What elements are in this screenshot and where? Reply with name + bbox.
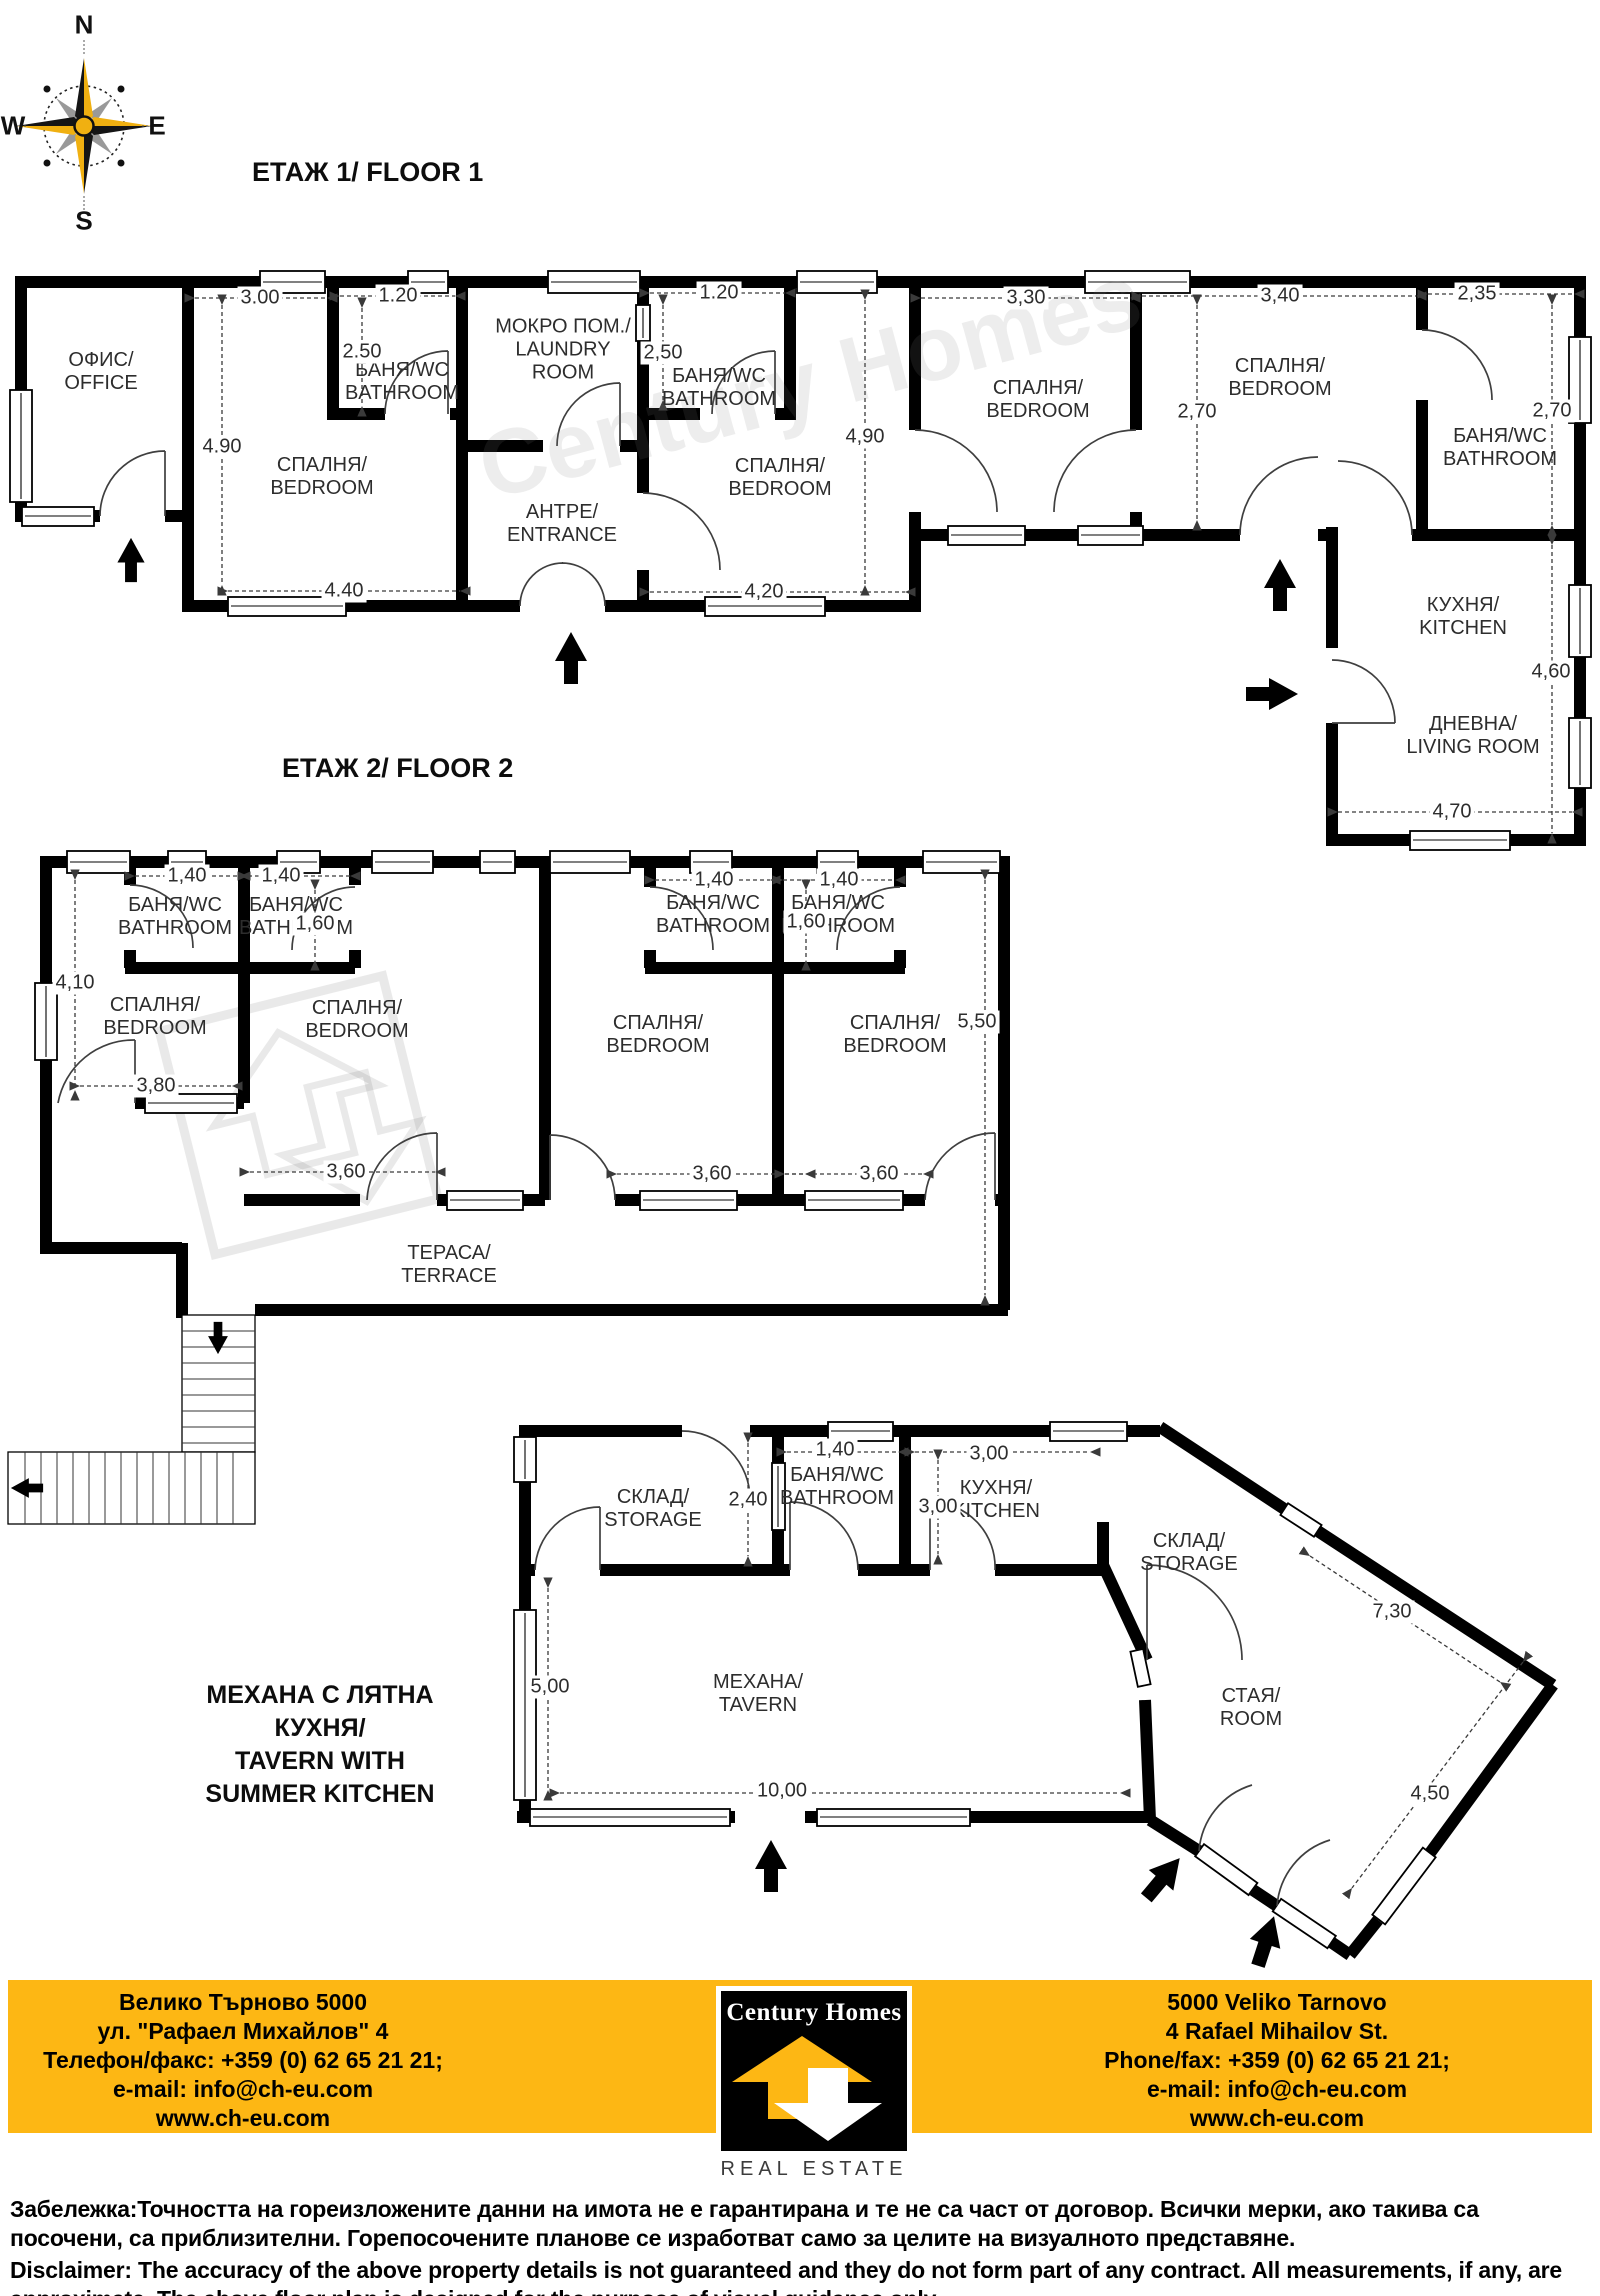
dim-f1-bedroom1-h: 4.90	[200, 436, 245, 459]
dim-f1-bedroom1-w: 3.00	[238, 287, 283, 310]
entrance-arrow-icon	[117, 538, 144, 582]
dim-f1-bath2-w: 1.20	[697, 282, 742, 305]
entrance-arrow-icon	[755, 1840, 787, 1892]
entrance-arrow-icon	[1243, 1911, 1290, 1970]
dim-f1-bath2-h: 2,50	[641, 342, 686, 365]
dim-f1-bedroom3-w: 3,30	[1004, 287, 1049, 310]
logo-arrows-icon	[721, 2027, 907, 2145]
room-label-bath3-f1: БАНЯ/WCBATHROOM	[1443, 425, 1557, 471]
dim-f2-bedroom1-h: 4,10	[53, 972, 98, 995]
room-label-kitchen-f1: КУХНЯ/KITCHEN	[1419, 594, 1507, 640]
disclaimer-en: Disclaimer: The accuracy of the above pr…	[10, 2256, 1592, 2296]
dim-tv-kitchen-h: 3,00	[916, 1496, 961, 1519]
dim-tv-storage1-h: 2,40	[726, 1489, 771, 1512]
room-label-kitchen-tavern: КУХНЯ/KITCHEN	[952, 1477, 1040, 1523]
room-label-bedroom4-f1: СПАЛНЯ/BEDROOM	[1228, 355, 1331, 401]
dim-f2-bath4-w: 1,40	[817, 869, 862, 892]
dim-f1-bedroom2-w: 4,20	[742, 581, 787, 604]
dim-f1-bedroom1-b: 4.40	[322, 580, 367, 603]
footer-email-en: e-mail: info@ch-eu.com	[1046, 2075, 1508, 2104]
dim-f1-bath1-w: 1.20	[376, 285, 421, 308]
room-label-bedroom1-f2: СПАЛНЯ/BEDROOM	[103, 994, 206, 1040]
floor2-title: ЕТАЖ 2/ FLOOR 2	[282, 753, 513, 784]
dim-f1-bath1-h: 2.50	[340, 341, 385, 364]
room-label-bath-tavern: БАНЯ/WCBATHROOM	[780, 1464, 894, 1510]
room-label-storage2: СКЛАД/STORAGE	[1140, 1530, 1237, 1576]
compass-icon	[14, 40, 152, 210]
room-label-bath1-f2: БАНЯ/WCBATHROOM	[118, 894, 232, 940]
room-label-terrace: ТЕРАСА/TERRACE	[401, 1242, 497, 1288]
dim-f1-kitchen-h: 4,60	[1529, 661, 1574, 684]
logo-tagline: REAL ESTATE	[700, 2158, 928, 2181]
room-label-bedroom3-f2: СПАЛНЯ/BEDROOM	[606, 1012, 709, 1058]
footer-website-en: www.ch-eu.com	[1046, 2104, 1508, 2133]
dim-tv-room-l: 7,30	[1370, 1601, 1415, 1624]
dim-tv-tavern-w: 10,00	[754, 1780, 810, 1803]
compass-south-label: S	[75, 206, 92, 237]
compass-north-label: N	[75, 10, 94, 41]
room-label-bedroom2-f1: СПАЛНЯ/BEDROOM	[728, 455, 831, 501]
footer-website-bg: www.ch-eu.com	[10, 2104, 476, 2133]
dim-f2-bath3-w: 1,40	[692, 869, 737, 892]
room-label-storage1: СКЛАД/STORAGE	[604, 1486, 701, 1532]
dim-f2-bedroom2-w: 3,60	[324, 1161, 369, 1184]
footer-email-bg: e-mail: info@ch-eu.com	[10, 2075, 476, 2104]
entrance-arrow-icon	[1264, 559, 1296, 611]
dim-f2-bedroom4-h: 5,50	[955, 1011, 1000, 1034]
room-label-office: ОФИС/OFFICE	[64, 349, 137, 395]
entrance-arrow-icon	[555, 632, 587, 684]
dim-f2-bedroom1-w: 3,80	[134, 1075, 179, 1098]
dim-tv-room-w: 4,50	[1408, 1783, 1453, 1806]
dim-f1-bedroom4-w: 3,40	[1258, 285, 1303, 308]
dim-f1-bath3-h: 2,70	[1530, 400, 1575, 423]
dim-f2-bedroom3-w: 3,60	[690, 1163, 735, 1186]
floorplan-document: Century Homes	[0, 0, 1600, 2296]
dim-f2-bedroom4-w: 3,60	[857, 1163, 902, 1186]
dim-tv-bath-w: 1,40	[813, 1439, 858, 1462]
room-label-bedroom4-f2: СПАЛНЯ/BEDROOM	[843, 1012, 946, 1058]
logo-brand-text: Century Homes	[721, 1991, 907, 2027]
disclaimer-bg: Забележка:Точността на гореизложените да…	[10, 2195, 1592, 2253]
room-label-laundry: МОКРО ПОМ./LAUNDRYROOM	[495, 316, 631, 385]
dim-tv-kitchen-w: 3,00	[967, 1443, 1012, 1466]
compass-west-label: W	[1, 111, 26, 142]
tavern-title: МЕХАНА С ЛЯТНАКУХНЯ/ TAVERN WITHSUMMER K…	[152, 1679, 488, 1811]
footer-address-bg: Велико Търново 5000 ул. "Рафаел Михайлов…	[10, 1988, 476, 2133]
stairs	[8, 1315, 255, 1524]
dim-f1-bedroom4-h: 2,70	[1175, 401, 1220, 424]
dim-f2-bath4-h: 1,60	[784, 911, 829, 934]
room-label-bath1-f1: БАНЯ/WCBATHROOM	[345, 359, 459, 405]
room-label-living: ДНЕВНА/LIVING ROOM	[1406, 713, 1539, 759]
entrance-arrow-icon	[1246, 678, 1298, 710]
room-label-bath2-f1: БАНЯ/WCBATHROOM	[662, 365, 776, 411]
dim-tv-tavern-h: 5,00	[528, 1676, 573, 1699]
room-label-tavern: МЕХАНА/TAVERN	[713, 1671, 803, 1717]
dim-f1-bath3-w: 2,35	[1455, 283, 1500, 306]
compass-east-label: E	[148, 111, 165, 142]
footer-address-en: 5000 Veliko Tarnovo 4 Rafael Mihailov St…	[1046, 1988, 1508, 2133]
dim-f2-bath1-w: 1,40	[165, 865, 210, 888]
room-label-entrance: АНТРЕ/ENTRANCE	[507, 501, 617, 547]
room-label-bedroom2-f2: СПАЛНЯ/BEDROOM	[305, 997, 408, 1043]
room-label-room: СТАЯ/ROOM	[1220, 1685, 1282, 1731]
dim-f2-bath2-w: 1,40	[259, 865, 304, 888]
dim-f1-kitchen-w: 4,70	[1430, 801, 1475, 824]
floor1-title: ЕТАЖ 1/ FLOOR 1	[252, 157, 483, 188]
room-label-bath3-f2: БАНЯ/WCBATHROOM	[656, 892, 770, 938]
century-homes-logo: Century Homes	[716, 1986, 912, 2156]
entrance-arrow-icon	[1134, 1848, 1192, 1908]
room-label-bedroom1-f1: СПАЛНЯ/BEDROOM	[270, 454, 373, 500]
room-label-bedroom3-f1: СПАЛНЯ/BEDROOM	[986, 377, 1089, 423]
dim-f2-bath2-h: 1,60	[293, 913, 338, 936]
dim-f1-bedroom2-h: 4,90	[843, 426, 888, 449]
